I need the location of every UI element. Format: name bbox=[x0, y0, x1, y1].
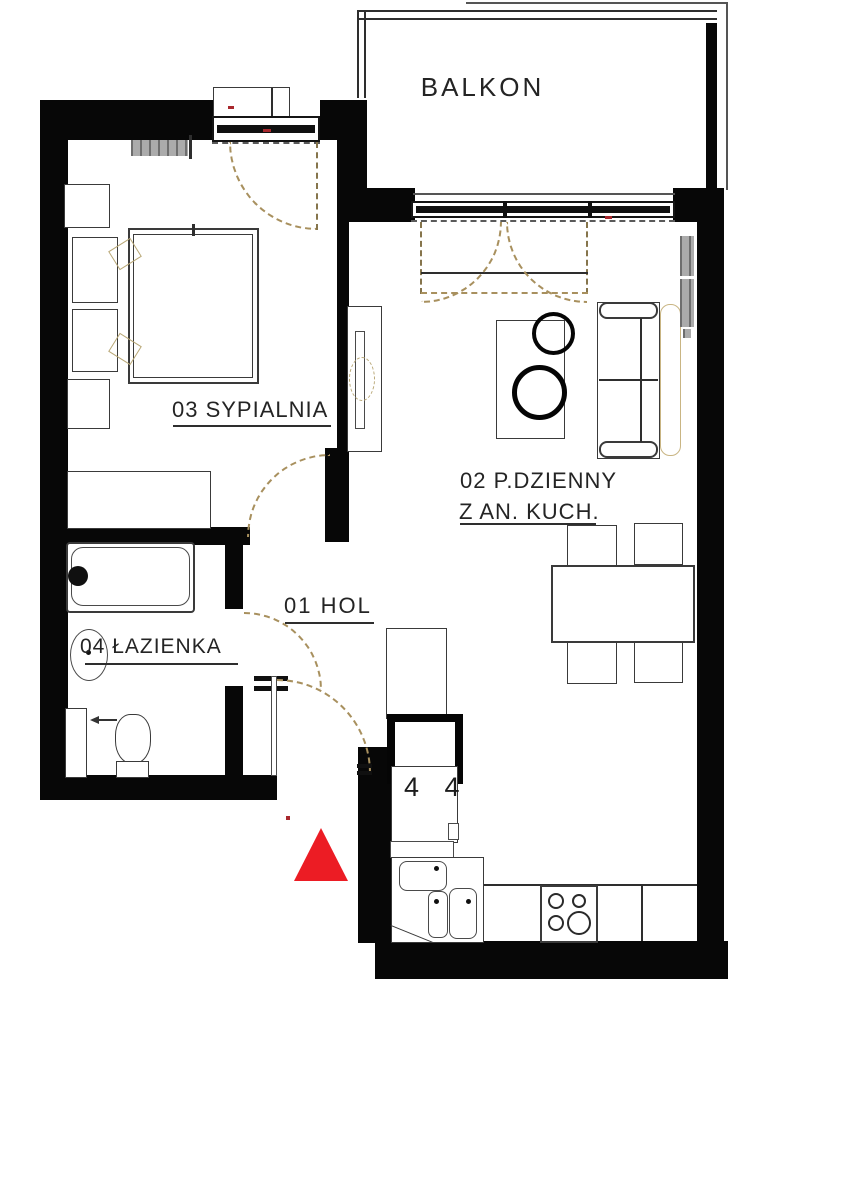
balcony-border bbox=[357, 10, 717, 12]
balcony-outer-line bbox=[726, 2, 728, 190]
wall-living-top bbox=[357, 188, 415, 222]
window-mullion bbox=[588, 201, 592, 218]
bathroom-label-underline bbox=[85, 663, 238, 665]
door-swing-arc bbox=[421, 222, 502, 303]
sofa-back-cushions bbox=[660, 304, 681, 456]
window-sill bbox=[213, 87, 290, 117]
sink-tap bbox=[434, 866, 439, 871]
decor-circle bbox=[532, 312, 575, 355]
sofa bbox=[597, 302, 660, 459]
wall-bathroom-hall bbox=[225, 545, 243, 609]
sink-basin bbox=[399, 861, 447, 891]
wall-kitchen-bottom-exterior bbox=[375, 941, 728, 979]
flow-arrow-head bbox=[90, 716, 99, 724]
dining-table bbox=[551, 565, 695, 643]
sofa-armrest bbox=[599, 441, 658, 458]
flow-arrow bbox=[98, 719, 117, 721]
wall-right-exterior bbox=[697, 188, 724, 979]
door-frame-mark bbox=[357, 771, 372, 775]
balcony-border bbox=[357, 10, 359, 98]
dining-chair bbox=[567, 525, 617, 567]
bed-inner-line bbox=[133, 234, 253, 378]
entrance-marker bbox=[294, 828, 348, 881]
wall-living-top bbox=[673, 188, 699, 222]
radiator bbox=[131, 140, 188, 156]
door-swing-arc bbox=[247, 454, 330, 537]
sink-basin bbox=[428, 891, 448, 938]
counter-divider bbox=[641, 886, 643, 941]
cabinet-handle bbox=[448, 823, 459, 840]
bathtub-drain bbox=[68, 566, 88, 586]
nightstand bbox=[72, 237, 118, 303]
wall-top-exterior bbox=[40, 100, 217, 140]
bathtub-inner bbox=[71, 547, 190, 606]
radiator-valve bbox=[189, 135, 192, 159]
window-mullion bbox=[503, 201, 507, 218]
radiator-valve bbox=[683, 329, 691, 338]
balcony-border bbox=[357, 18, 717, 20]
wardrobe bbox=[64, 184, 110, 228]
decor-circle bbox=[512, 365, 567, 420]
floor-plan: BALKON 03 SYPIALNIA bbox=[0, 0, 849, 1200]
sink-basin bbox=[449, 888, 477, 939]
stove-burner bbox=[548, 893, 564, 909]
sink-tap bbox=[434, 899, 439, 904]
bedroom-label: 03 SYPIALNIA bbox=[172, 397, 328, 423]
window-sill-divider bbox=[271, 88, 273, 116]
window-sill-line bbox=[413, 193, 675, 195]
wall-hall-bottom bbox=[40, 775, 277, 800]
balcony-border bbox=[364, 10, 366, 98]
living-label-line2: Z AN. KUCH. bbox=[459, 499, 600, 525]
bed-center-mark bbox=[192, 224, 195, 236]
radiator bbox=[680, 236, 694, 276]
bathroom-label: 04 ŁAZIENKA bbox=[80, 635, 222, 659]
sofa-seat-line bbox=[599, 379, 658, 381]
door-swing-arc bbox=[229, 142, 317, 230]
hall-label: 01 HOL bbox=[284, 593, 372, 619]
sink-tap bbox=[466, 899, 471, 904]
dimension-mark bbox=[605, 216, 612, 219]
balcony-side-wall bbox=[706, 23, 717, 190]
stove-burner bbox=[548, 915, 564, 931]
hall-label-underline bbox=[285, 622, 374, 624]
dining-chair bbox=[634, 523, 683, 565]
fridge-marks: 4 4 bbox=[404, 772, 469, 803]
sofa-armrest bbox=[599, 302, 658, 319]
sofa-seat-line bbox=[640, 318, 642, 442]
side-table bbox=[67, 379, 110, 429]
toilet-bowl bbox=[115, 714, 151, 764]
tall-cabinet bbox=[386, 628, 447, 719]
radiator bbox=[680, 279, 694, 327]
stove-burner bbox=[567, 911, 591, 935]
wall-niche bbox=[65, 708, 87, 778]
living-window-glass bbox=[416, 206, 670, 213]
living-label-line1: 02 P.DZIENNY bbox=[460, 468, 617, 494]
nightstand bbox=[72, 309, 118, 372]
stove bbox=[540, 885, 598, 943]
door-swing-arc bbox=[506, 222, 587, 303]
dining-chair bbox=[634, 641, 683, 683]
dimension-mark bbox=[228, 106, 234, 109]
tv-outline bbox=[349, 357, 375, 401]
dining-chair bbox=[567, 640, 617, 684]
counter-segment bbox=[390, 841, 454, 858]
door-frame-mark bbox=[357, 764, 372, 768]
dimension-mark bbox=[286, 816, 290, 820]
wall-bathroom-hall bbox=[225, 686, 243, 778]
balcony-label: BALKON bbox=[395, 72, 570, 103]
door-swing-arc bbox=[277, 679, 371, 773]
dresser bbox=[67, 471, 211, 529]
bedroom-label-underline bbox=[173, 425, 331, 427]
dimension-mark bbox=[263, 129, 271, 132]
stove-burner bbox=[572, 894, 586, 908]
balcony-outer-line bbox=[466, 2, 727, 4]
toilet-tank bbox=[116, 761, 149, 778]
open-door-leaf-dash bbox=[316, 142, 318, 230]
